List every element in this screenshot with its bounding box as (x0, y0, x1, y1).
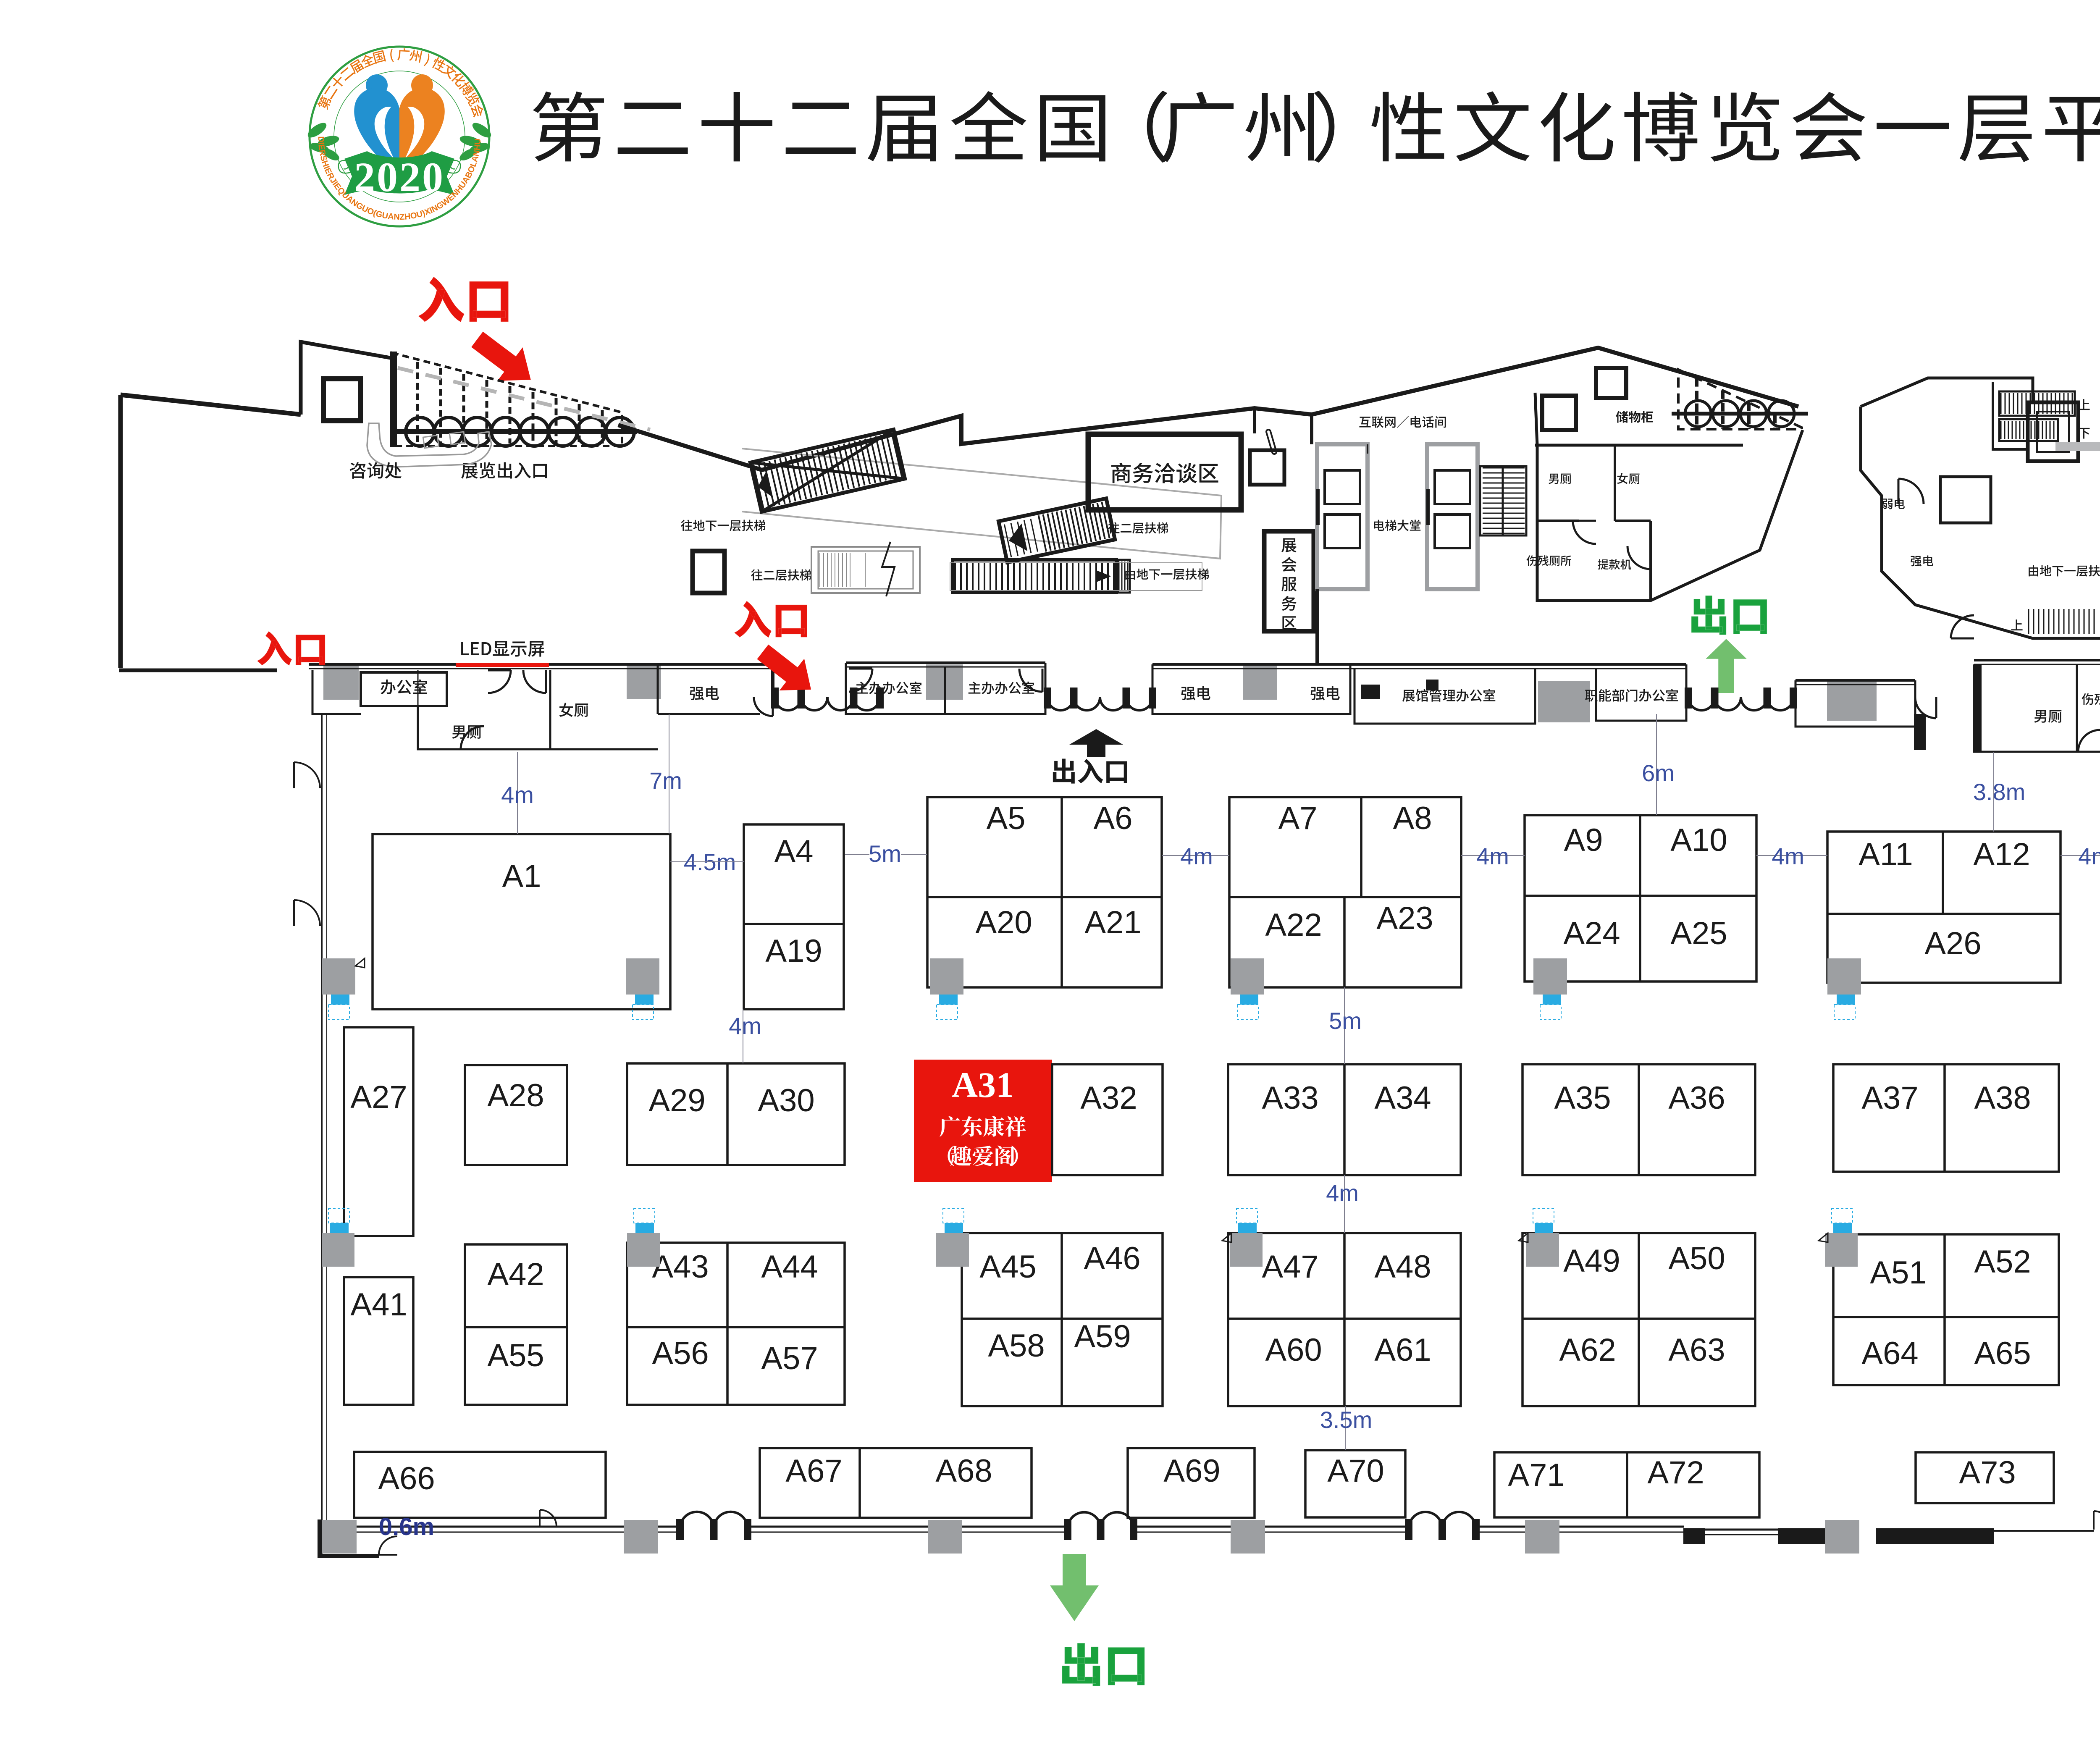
svg-text:A43: A43 (652, 1249, 709, 1285)
svg-text:4m: 4m (501, 782, 534, 808)
svg-text:A65: A65 (1974, 1336, 2031, 1371)
svg-text:A24: A24 (1563, 916, 1620, 951)
svg-text:A51: A51 (1870, 1255, 1927, 1291)
svg-text:A7: A7 (1278, 800, 1318, 836)
svg-text:A26: A26 (1924, 926, 1981, 961)
svg-text:4m: 4m (1180, 843, 1213, 869)
svg-text:A55: A55 (487, 1338, 544, 1373)
svg-text:A41: A41 (350, 1287, 407, 1323)
svg-text:7m: 7m (649, 767, 682, 794)
svg-text:A8: A8 (1393, 800, 1432, 836)
svg-text:A72: A72 (1647, 1455, 1704, 1491)
svg-text:A47: A47 (1262, 1249, 1318, 1285)
svg-text:A32: A32 (1080, 1080, 1137, 1116)
svg-text:A6: A6 (1094, 800, 1133, 836)
svg-text:A61: A61 (1374, 1332, 1431, 1368)
svg-text:A66: A66 (378, 1461, 435, 1496)
svg-text:A35: A35 (1554, 1080, 1611, 1116)
svg-text:A37: A37 (1861, 1080, 1918, 1116)
svg-text:0.6m: 0.6m (379, 1513, 434, 1540)
svg-text:A58: A58 (988, 1328, 1045, 1364)
svg-text:4m: 4m (1326, 1180, 1359, 1206)
svg-text:4m: 4m (1772, 843, 1804, 869)
svg-text:A70: A70 (1327, 1453, 1384, 1489)
svg-text:A63: A63 (1668, 1332, 1725, 1368)
svg-text:A52: A52 (1974, 1244, 2031, 1280)
svg-text:A45: A45 (979, 1249, 1036, 1285)
svg-text:A12: A12 (1973, 837, 2030, 872)
svg-text:A56: A56 (652, 1336, 709, 1371)
svg-text:A60: A60 (1265, 1332, 1322, 1368)
svg-text:A9: A9 (1564, 822, 1603, 858)
svg-text:A30: A30 (758, 1083, 814, 1118)
svg-text:A21: A21 (1084, 905, 1141, 940)
svg-text:4m: 4m (1476, 843, 1509, 869)
svg-text:A64: A64 (1861, 1336, 1918, 1371)
svg-text:A20: A20 (975, 905, 1032, 940)
svg-text:A23: A23 (1376, 900, 1433, 936)
svg-text:A48: A48 (1374, 1249, 1431, 1285)
svg-text:A49: A49 (1563, 1243, 1620, 1279)
svg-text:4m: 4m (729, 1013, 761, 1039)
svg-text:2020: 2020 (354, 154, 445, 200)
svg-text:A36: A36 (1668, 1080, 1725, 1116)
svg-text:A38: A38 (1974, 1080, 2031, 1116)
svg-text:4m: 4m (2078, 843, 2100, 869)
svg-text:A27: A27 (350, 1079, 407, 1115)
svg-text:A57: A57 (761, 1341, 818, 1376)
svg-text:5m: 5m (1329, 1008, 1362, 1034)
svg-text:A73: A73 (1959, 1455, 2016, 1491)
svg-text:A28: A28 (487, 1078, 544, 1113)
svg-text:3.5m: 3.5m (1320, 1407, 1373, 1433)
svg-text:5m: 5m (869, 840, 901, 867)
svg-text:A5: A5 (987, 800, 1026, 836)
svg-text:A34: A34 (1374, 1080, 1431, 1116)
svg-text:A44: A44 (761, 1249, 818, 1285)
svg-text:A25: A25 (1670, 916, 1727, 951)
svg-text:6m: 6m (1642, 760, 1675, 786)
svg-text:A71: A71 (1508, 1457, 1564, 1493)
svg-text:A31: A31 (952, 1065, 1014, 1105)
svg-text:A11: A11 (1858, 837, 1913, 872)
svg-text:3.8m: 3.8m (1973, 779, 2026, 805)
svg-text:A4: A4 (774, 834, 814, 869)
svg-text:A67: A67 (785, 1453, 842, 1489)
svg-text:A19: A19 (765, 933, 822, 969)
svg-text:A46: A46 (1084, 1241, 1140, 1276)
svg-text:A68: A68 (935, 1453, 992, 1489)
svg-text:A62: A62 (1559, 1332, 1616, 1368)
svg-text:A29: A29 (648, 1083, 705, 1118)
svg-text:A42: A42 (487, 1257, 544, 1292)
svg-text:A22: A22 (1265, 907, 1322, 943)
svg-text:A1: A1 (502, 858, 541, 894)
svg-text:A33: A33 (1262, 1080, 1318, 1116)
svg-text:A69: A69 (1163, 1453, 1220, 1489)
svg-text:A59: A59 (1074, 1319, 1131, 1354)
svg-text:A10: A10 (1670, 822, 1727, 858)
svg-text:A50: A50 (1668, 1241, 1725, 1276)
